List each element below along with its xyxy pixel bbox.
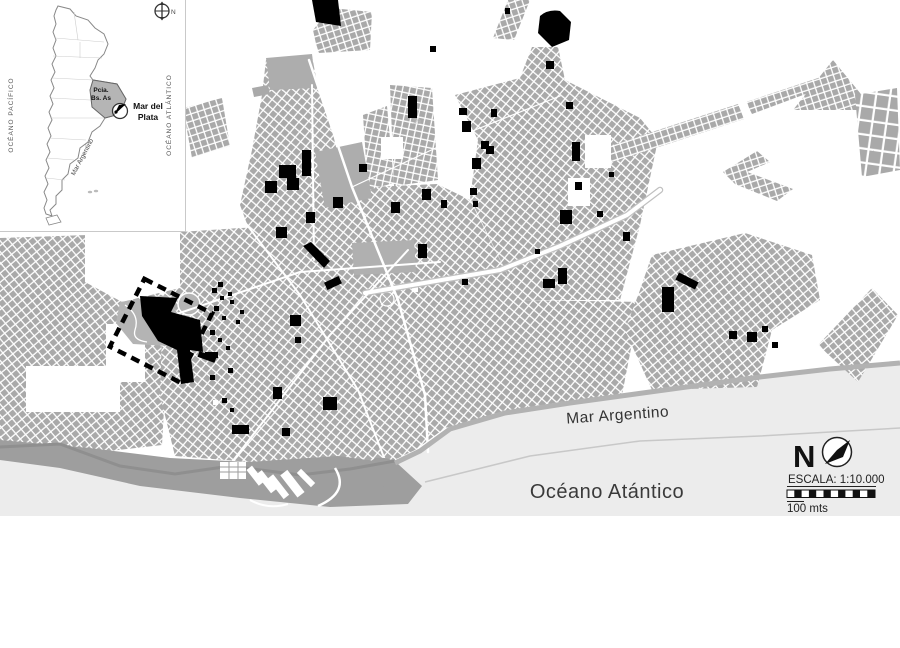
- villa-mark: [306, 212, 315, 223]
- villa-mark: [462, 121, 471, 132]
- villa-mark: [462, 279, 468, 285]
- villa-mark: [572, 142, 580, 161]
- villa-mark: [535, 249, 540, 254]
- villa-mark: [422, 189, 431, 200]
- plain-patch: [315, 142, 372, 208]
- villa-mark: [232, 425, 249, 434]
- open-land-area: [381, 137, 403, 159]
- villa-mark: [236, 320, 240, 324]
- malvinas-island: [94, 190, 98, 193]
- tierra-del-fuego: [46, 215, 61, 225]
- villa-mark: [543, 279, 555, 288]
- villa-mark: [228, 292, 232, 296]
- villa-mark: [597, 211, 603, 217]
- villa-mark: [210, 375, 215, 380]
- villa-mark: [276, 227, 287, 238]
- locator-inset: Pcia. Bs. As Mar del Plata Mar Argentino…: [0, 0, 186, 232]
- scale-cell: [867, 490, 874, 498]
- villa-mark: [290, 315, 301, 326]
- villa-mark: [312, 0, 341, 26]
- villa-mark: [295, 337, 301, 343]
- villa-mark: [473, 201, 478, 207]
- villa-mark: [408, 96, 417, 118]
- villa-mark: [214, 306, 219, 311]
- scale-cell: [809, 490, 816, 498]
- villa-mark: [222, 316, 226, 320]
- villa-mark: [491, 109, 497, 117]
- urban-grid-area: [625, 233, 820, 390]
- villa-mark: [459, 108, 467, 115]
- villa-mark: [418, 244, 427, 258]
- villa-mark: [218, 282, 223, 287]
- urban-grid-area: [855, 88, 900, 177]
- legend-panel: REFERENCIAS Barrio Nuevo Golf Ordenanza …: [0, 516, 900, 648]
- ocean-label: Océano Atántico: [530, 481, 684, 503]
- villa-mark: [230, 300, 234, 304]
- villa-mark: [566, 102, 573, 109]
- villa-mark: [302, 150, 311, 176]
- urban-grid-area: [723, 151, 793, 201]
- villa-mark: [228, 368, 233, 373]
- villa-mark: [287, 178, 299, 190]
- villa-mark: [210, 330, 215, 335]
- villa-mark: [265, 181, 277, 193]
- villa-mark: [762, 326, 768, 332]
- scale-text: ESCALA: 1:10.000: [788, 474, 885, 486]
- villa-mark: [279, 165, 296, 178]
- inset-compass-label: N: [171, 9, 176, 16]
- villa-mark: [558, 268, 567, 284]
- villa-mark: [729, 331, 737, 339]
- villa-mark: [212, 288, 217, 293]
- villa-mark: [538, 11, 571, 47]
- villa-mark: [222, 398, 227, 403]
- scale-cell: [794, 490, 801, 498]
- scale-checker: [787, 490, 875, 498]
- villa-mark: [226, 346, 230, 350]
- inset-compass-icon: [155, 2, 170, 21]
- argentina-inset-map: Pcia. Bs. As Mar del Plata Mar Argentino…: [0, 0, 185, 231]
- city-label: Mar del: [133, 101, 163, 111]
- villa-mark: [333, 197, 343, 208]
- scale-cell: [838, 490, 845, 498]
- city-label: Plata: [138, 112, 159, 122]
- villa-mark: [560, 210, 572, 224]
- villa-mark: [323, 397, 337, 410]
- villa-mark: [391, 202, 400, 213]
- villa-mark: [505, 8, 510, 14]
- north-label: N: [793, 439, 815, 474]
- villa-mark: [472, 158, 481, 169]
- plain-patch: [352, 240, 416, 275]
- villa-mark: [218, 338, 222, 342]
- scale-distance: 100 mts: [787, 503, 828, 515]
- villa-mark: [430, 46, 436, 52]
- villa-mark: [441, 200, 447, 208]
- mar-del-plata-dot: [114, 110, 117, 113]
- villa-mark: [273, 387, 282, 399]
- villa-mark: [205, 352, 218, 358]
- villa-mark: [575, 182, 582, 190]
- villa-mark: [623, 232, 630, 241]
- villa-mark: [546, 61, 554, 69]
- inset-ocean-east-label: OCÉANO ATLÁNTICO: [164, 74, 173, 156]
- port-warehouses: [220, 462, 246, 479]
- open-land-area: [585, 135, 611, 168]
- plaza-dot: [213, 400, 218, 405]
- villa-mark: [359, 164, 367, 172]
- villa-mark: [282, 428, 290, 436]
- scale-cell: [824, 490, 831, 498]
- province-label: Bs. As: [91, 95, 111, 102]
- urban-grid-area: [493, 0, 530, 40]
- villa-mark: [747, 332, 757, 342]
- villa-mark: [470, 188, 477, 195]
- villa-mark: [772, 342, 778, 348]
- route-label: 29: [413, 119, 421, 126]
- urban-grid-area: [183, 98, 230, 158]
- villa-mark: [220, 296, 224, 300]
- villa-mark: [609, 172, 614, 177]
- province-label: Pcia.: [93, 87, 108, 94]
- villa-mark: [230, 408, 234, 412]
- route-label: 0: [577, 96, 581, 103]
- open-land-area: [26, 366, 120, 412]
- villa-mark: [240, 310, 244, 314]
- malvinas-island: [88, 191, 92, 194]
- villa-mark: [662, 287, 674, 312]
- map-figure: 29 0 Mar Argentino Océano Atántico N ESC…: [0, 0, 900, 648]
- villa-mark: [486, 146, 494, 154]
- inset-ocean-west-label: OCÉANO PACÍFICO: [6, 77, 15, 152]
- scale-cell: [853, 490, 860, 498]
